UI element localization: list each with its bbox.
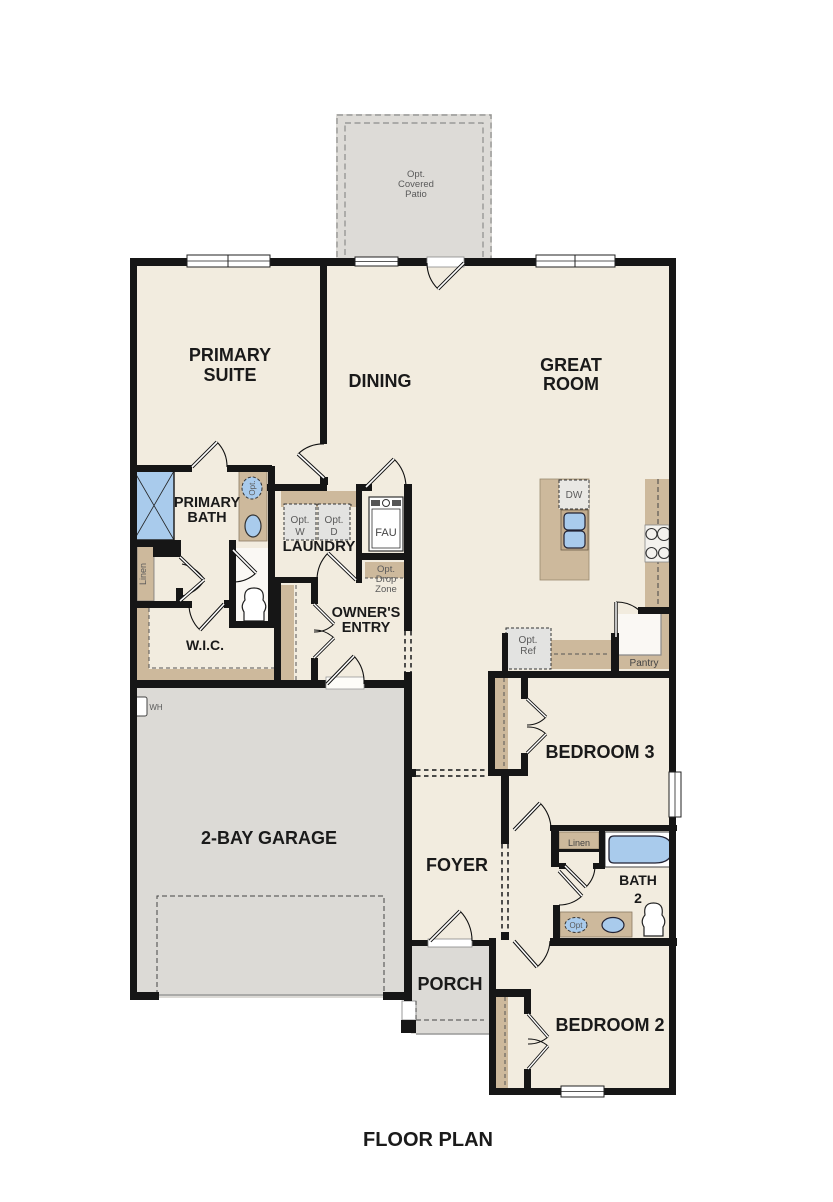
svg-text:Opt.: Opt. <box>291 515 310 526</box>
svg-text:W.I.C.: W.I.C. <box>186 637 224 653</box>
svg-text:Opt.: Opt. <box>248 480 257 495</box>
svg-text:LAUNDRY: LAUNDRY <box>283 538 356 555</box>
svg-text:FLOOR PLAN: FLOOR PLAN <box>363 1129 493 1151</box>
svg-text:Opt: Opt <box>570 921 584 930</box>
svg-text:ENTRY: ENTRY <box>342 620 391 636</box>
svg-text:Linen: Linen <box>568 838 590 848</box>
svg-text:Opt.: Opt. <box>519 635 538 646</box>
svg-text:Pantry: Pantry <box>630 658 659 669</box>
svg-text:PRIMARY: PRIMARY <box>174 495 241 511</box>
svg-text:WH: WH <box>149 703 163 712</box>
svg-text:Patio: Patio <box>405 189 427 200</box>
svg-text:PRIMARY: PRIMARY <box>189 345 271 365</box>
svg-text:DW: DW <box>566 490 583 501</box>
svg-text:BEDROOM 2: BEDROOM 2 <box>555 1015 664 1035</box>
svg-text:DINING: DINING <box>349 371 412 391</box>
svg-text:SUITE: SUITE <box>203 365 256 385</box>
svg-text:Ref: Ref <box>520 646 536 657</box>
svg-text:BATH: BATH <box>187 510 226 526</box>
svg-text:FOYER: FOYER <box>426 855 488 875</box>
svg-text:Zone: Zone <box>375 584 397 595</box>
svg-text:D: D <box>330 527 337 538</box>
svg-text:PORCH: PORCH <box>417 974 482 994</box>
svg-text:OWNER'S: OWNER'S <box>332 605 401 621</box>
svg-text:ROOM: ROOM <box>543 374 599 394</box>
svg-text:2: 2 <box>634 890 642 906</box>
svg-text:2-BAY GARAGE: 2-BAY GARAGE <box>201 828 337 848</box>
svg-text:W: W <box>295 527 305 538</box>
svg-text:FAU: FAU <box>375 527 396 539</box>
svg-text:BEDROOM 3: BEDROOM 3 <box>545 742 654 762</box>
svg-text:Linen: Linen <box>138 563 148 585</box>
svg-text:BATH: BATH <box>619 872 657 888</box>
svg-text:Opt.: Opt. <box>325 515 344 526</box>
svg-text:GREAT: GREAT <box>540 355 602 375</box>
